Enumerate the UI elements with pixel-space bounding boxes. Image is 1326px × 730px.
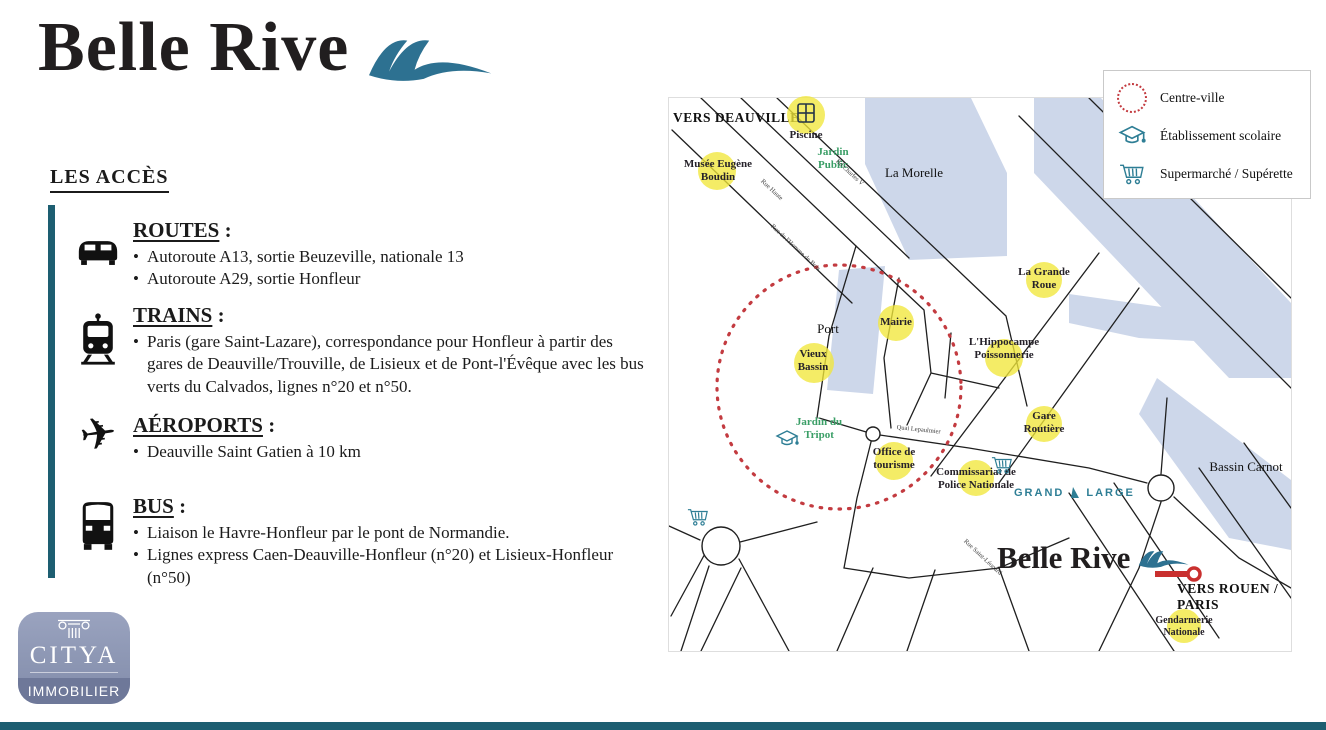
page-header: Belle Rive bbox=[38, 8, 495, 88]
section-title: BUS : bbox=[133, 494, 648, 519]
la-morelle-label: La Morelle bbox=[874, 166, 954, 181]
legend-label: Établissement scolaire bbox=[1160, 128, 1281, 144]
supermarket-icon bbox=[991, 454, 1013, 476]
poi-gendarmerie: Gendarmerie Nationale bbox=[1147, 615, 1221, 638]
poi-vieux-bassin: Vieux Bassin bbox=[784, 348, 842, 373]
list-item: Autoroute A13, sortie Beuzeville, nation… bbox=[133, 246, 648, 268]
legend-row-ecole: Établissement scolaire bbox=[1104, 117, 1310, 155]
map-legend: Centre-ville Établissement scolaire bbox=[1103, 70, 1311, 199]
bassin-carnot-label: Bassin Carnot bbox=[1202, 460, 1290, 475]
section-title: AÉROPORTS : bbox=[133, 413, 648, 438]
section-items: Liaison le Havre-Honfleur par le pont de… bbox=[133, 522, 648, 589]
legend-label: Centre-ville bbox=[1160, 90, 1224, 106]
list-item: Lignes express Caen-Deauville-Honfleur (… bbox=[133, 544, 648, 589]
section-items: Paris (gare Saint-Lazare), correspondanc… bbox=[133, 331, 648, 398]
poi-piscine: Piscine bbox=[782, 129, 830, 142]
poi-hippocampe: L'Hippocampe Poissonnerie bbox=[961, 336, 1047, 361]
plane-icon: ✈ bbox=[73, 413, 123, 457]
list-item: Deauville Saint Gatien à 10 km bbox=[133, 441, 648, 463]
poi-gare-routiere: Gare Routière bbox=[1017, 410, 1071, 435]
divider bbox=[30, 672, 117, 673]
citya-logo: CITYA IMMOBILIER bbox=[18, 612, 130, 704]
train-icon bbox=[73, 313, 123, 370]
supermarket-icon bbox=[1119, 161, 1145, 187]
poi-musee: Musée Eugène Boudin bbox=[674, 158, 762, 183]
port-label: Port bbox=[803, 322, 853, 337]
belle-rive-access-page: Belle Rive LES ACCÈS ROUTES : Autoroute … bbox=[0, 0, 1326, 730]
vers-rouen-label: VERS ROUEN / PARIS bbox=[1177, 581, 1289, 612]
legend-label: Supermarché / Supérette bbox=[1160, 166, 1293, 182]
accent-bar bbox=[48, 205, 55, 578]
citya-name: CITYA bbox=[18, 643, 130, 668]
section-title: TRAINS : bbox=[133, 303, 648, 328]
legend-row-supermarche: Supermarché / Supérette bbox=[1104, 155, 1310, 193]
park-label-jardin-public: Jardin Public bbox=[807, 146, 859, 171]
map-belle-rive-brand: Belle Rive bbox=[997, 540, 1190, 576]
sail-icon bbox=[1069, 486, 1081, 500]
vers-deauville-label: VERS DEAUVILLE bbox=[673, 110, 803, 126]
page-title: Belle Rive bbox=[38, 8, 349, 88]
section-bus: BUS : Liaison le Havre-Honfleur par le p… bbox=[133, 494, 648, 589]
wave-logo-icon bbox=[367, 26, 495, 88]
poi-office-tourisme: Office de tourisme bbox=[865, 446, 923, 471]
list-item: Autoroute A29, sortie Honfleur bbox=[133, 268, 648, 290]
column-capital-icon bbox=[18, 618, 130, 645]
grand-large-label: GRAND LARGE bbox=[1014, 486, 1135, 500]
centre-ville-circle-icon bbox=[1117, 83, 1147, 113]
list-item: Paris (gare Saint-Lazare), correspondanc… bbox=[133, 331, 648, 398]
section-routes: ROUTES : Autoroute A13, sortie Beuzevill… bbox=[133, 218, 648, 291]
legend-row-centre-ville: Centre-ville bbox=[1104, 79, 1310, 117]
section-trains: TRAINS : Paris (gare Saint-Lazare), corr… bbox=[133, 303, 648, 398]
park-label-jardin-tripot: Jardin du Tripot bbox=[791, 416, 847, 441]
poi-grande-roue: La Grande Roue bbox=[1015, 266, 1073, 291]
wave-logo-icon bbox=[1138, 545, 1190, 571]
list-item: Liaison le Havre-Honfleur par le pont de… bbox=[133, 522, 648, 544]
pool-icon bbox=[795, 102, 817, 126]
bus-icon bbox=[73, 500, 123, 555]
supermarket-icon bbox=[687, 506, 709, 528]
footer-bar bbox=[0, 722, 1326, 730]
section-airports: ✈ AÉROPORTS : Deauville Saint Gatien à 1… bbox=[133, 413, 648, 463]
poi-mairie: Mairie bbox=[872, 316, 920, 329]
section-title: ROUTES : bbox=[133, 218, 648, 243]
car-icon bbox=[73, 234, 123, 271]
section-items: Autoroute A13, sortie Beuzeville, nation… bbox=[133, 246, 648, 291]
access-heading: LES ACCÈS bbox=[50, 166, 169, 193]
school-icon bbox=[775, 428, 799, 450]
section-items: Deauville Saint Gatien à 10 km bbox=[133, 441, 648, 463]
school-icon bbox=[1118, 123, 1146, 149]
citya-tagline: IMMOBILIER bbox=[18, 678, 130, 704]
